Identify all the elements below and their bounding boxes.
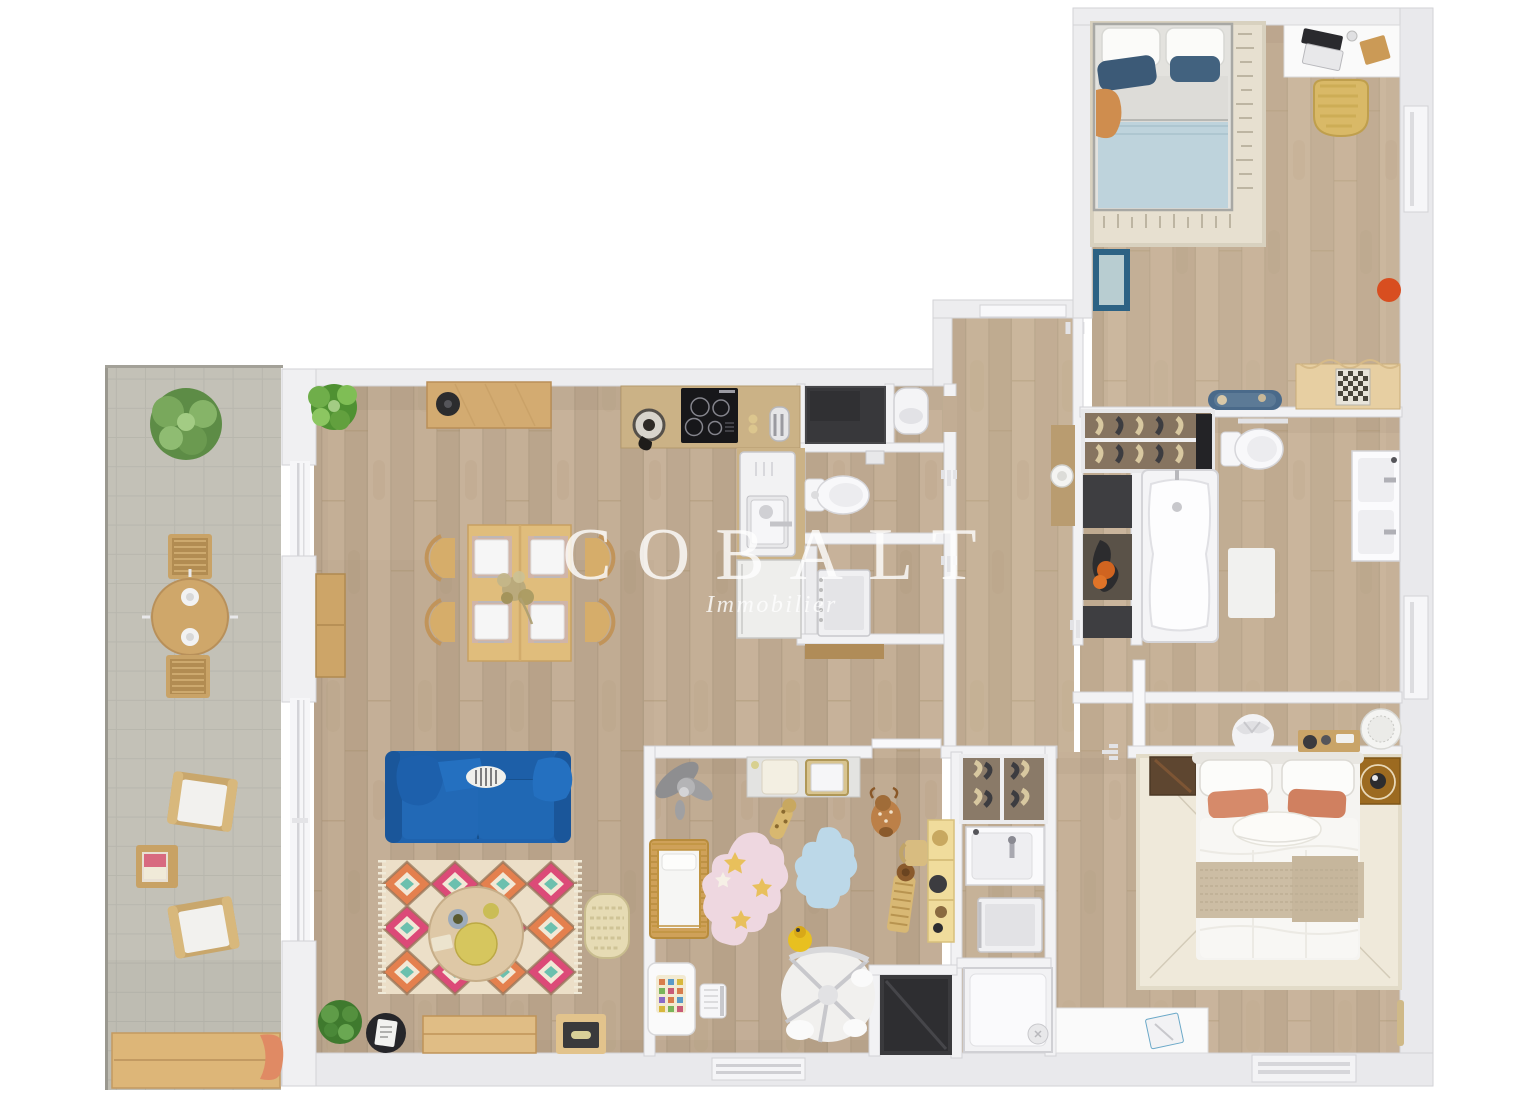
svg-text:COBALT: COBALT: [562, 514, 1001, 596]
svg-text:Immobilier: Immobilier: [705, 592, 838, 618]
